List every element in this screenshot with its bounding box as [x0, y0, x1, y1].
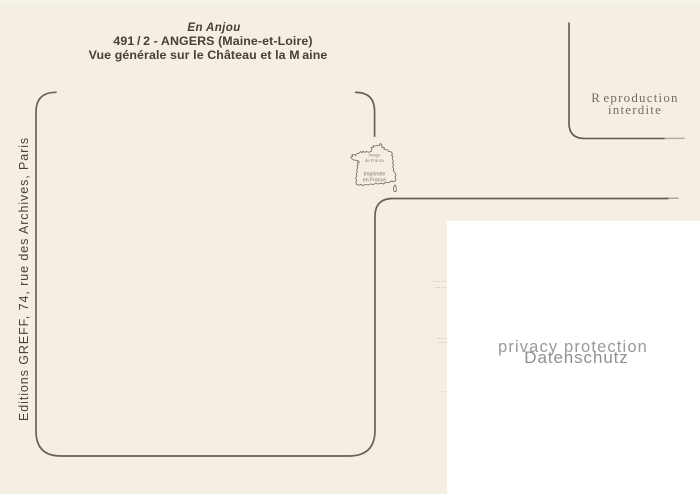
svg-text:en France: en France — [363, 178, 386, 184]
svg-text:Image: Image — [369, 153, 382, 158]
svg-text:de France: de France — [365, 158, 385, 163]
